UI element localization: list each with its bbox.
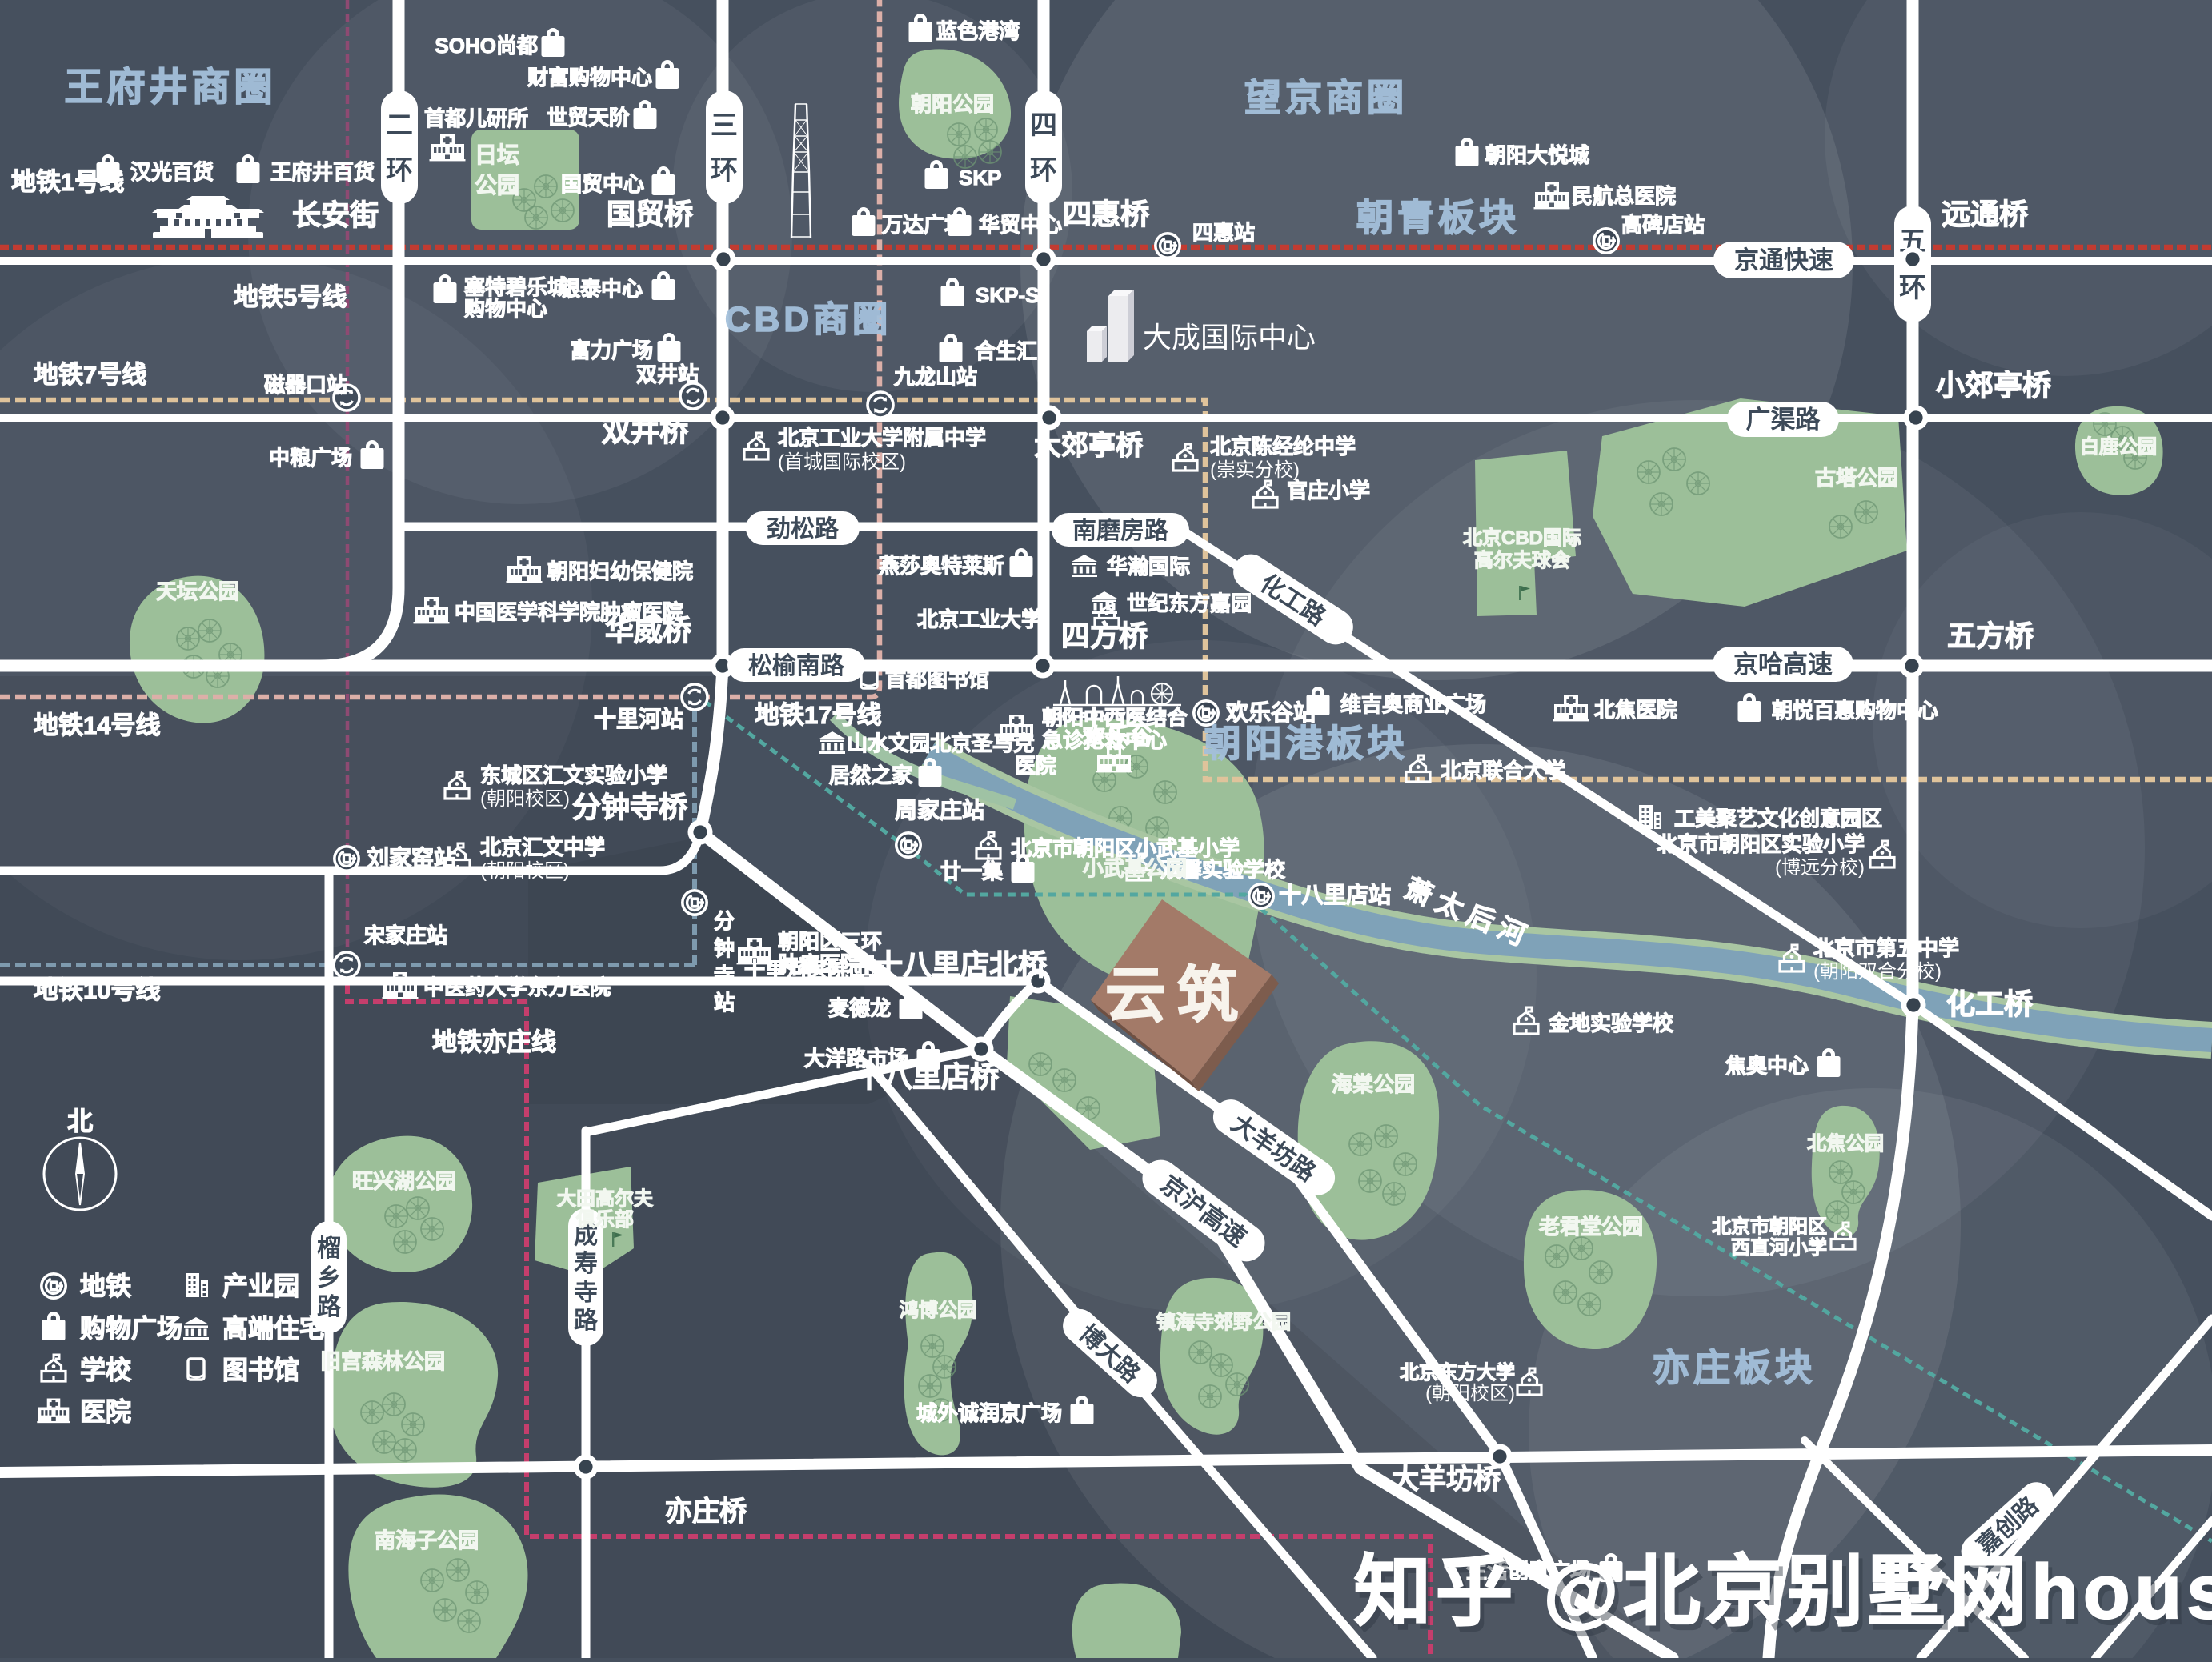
svg-text:图书馆: 图书馆 — [222, 1356, 299, 1384]
svg-text:劲松路: 劲松路 — [767, 516, 840, 543]
svg-text:蓝色港湾: 蓝色港湾 — [936, 19, 1020, 43]
svg-text:三: 三 — [711, 110, 738, 141]
svg-text:九龙山站: 九龙山站 — [893, 365, 977, 389]
svg-text:王府井商圈: 王府井商圈 — [64, 66, 276, 109]
svg-text:朝阳妇幼保健院: 朝阳妇幼保健院 — [547, 559, 693, 583]
svg-text:西直河小学: 西直河小学 — [1731, 1236, 1827, 1259]
svg-text:王府井百货: 王府井百货 — [270, 160, 375, 184]
svg-text:中医药大学东方医院: 中医药大学东方医院 — [423, 975, 611, 999]
svg-text:广渠路: 广渠路 — [1746, 406, 1821, 434]
svg-text:南磨房路: 南磨房路 — [1072, 518, 1169, 544]
svg-text:俱乐部: 俱乐部 — [575, 1208, 634, 1231]
svg-text:北京市第五中学: 北京市第五中学 — [1813, 936, 1959, 960]
svg-text:焦奥中心: 焦奥中心 — [1725, 1054, 1809, 1078]
svg-text:地铁17号线: 地铁17号线 — [755, 701, 881, 729]
svg-text:地铁5号线: 地铁5号线 — [234, 283, 347, 311]
svg-text:北京CBD国际: 北京CBD国际 — [1463, 527, 1581, 549]
svg-text:塞特碧乐城: 塞特碧乐城 — [464, 275, 568, 299]
svg-text:磁器口站: 磁器口站 — [264, 373, 347, 397]
svg-text:地铁14号线: 地铁14号线 — [34, 711, 160, 739]
svg-text:购物中心: 购物中心 — [464, 297, 547, 321]
svg-text:朝青板块: 朝青板块 — [1356, 197, 1520, 238]
svg-text:首都图书馆: 首都图书馆 — [885, 667, 989, 691]
svg-text:国贸中心: 国贸中心 — [561, 172, 644, 196]
svg-text:购物广场: 购物广场 — [80, 1314, 182, 1343]
svg-text:富力广场: 富力广场 — [570, 338, 653, 362]
svg-text:环: 环 — [1030, 155, 1057, 186]
svg-text:北京汇文中学: 北京汇文中学 — [480, 835, 605, 859]
svg-text:世贸天阶: 世贸天阶 — [547, 106, 630, 130]
svg-text:古塔公园: 古塔公园 — [1815, 466, 1898, 490]
svg-text:(首城国际校区): (首城国际校区) — [778, 451, 906, 473]
svg-text:长安街: 长安街 — [292, 198, 379, 231]
svg-text:高端住宅: 高端住宅 — [222, 1314, 325, 1343]
svg-text:分钟寺桥: 分钟寺桥 — [572, 791, 687, 823]
svg-text:南海子公园: 南海子公园 — [375, 1528, 479, 1552]
svg-text:亦庄板块: 亦庄板块 — [1653, 1347, 1816, 1388]
svg-text:寿: 寿 — [574, 1250, 598, 1277]
svg-text:中国医学科学院肿瘤医院: 中国医学科学院肿瘤医院 — [455, 600, 683, 624]
svg-text:地铁亦庄线: 地铁亦庄线 — [432, 1028, 556, 1056]
svg-text:海棠公园: 海棠公园 — [1332, 1072, 1415, 1096]
svg-text:鸿博公园: 鸿博公园 — [900, 1299, 976, 1321]
svg-text:远通桥: 远通桥 — [1942, 198, 2028, 230]
svg-text:地铁10号线: 地铁10号线 — [34, 976, 160, 1004]
svg-text:镇海寺郊野公园: 镇海寺郊野公园 — [1156, 1311, 1291, 1333]
svg-text:中粮广场: 中粮广场 — [269, 446, 352, 470]
svg-text:四方桥: 四方桥 — [1061, 619, 1148, 652]
svg-text:四: 四 — [1030, 110, 1057, 141]
svg-text:学校: 学校 — [80, 1356, 131, 1384]
svg-text:站: 站 — [714, 991, 735, 1015]
svg-text:合生汇: 合生汇 — [975, 339, 1037, 363]
svg-text:松榆南路: 松榆南路 — [748, 653, 845, 679]
svg-text:十里河站: 十里河站 — [594, 707, 683, 731]
svg-text:CBD商圈: CBD商圈 — [725, 300, 892, 339]
svg-text:北焦医院: 北焦医院 — [1594, 698, 1677, 722]
svg-text:急诊抢救中心: 急诊抢救中心 — [1042, 728, 1167, 752]
svg-text:(朝阳校区): (朝阳校区) — [480, 788, 570, 810]
svg-text:SOHO尚都: SOHO尚都 — [435, 34, 538, 58]
svg-text:北京圣马克: 北京圣马克 — [930, 731, 1034, 755]
svg-text:华贸中心: 华贸中心 — [979, 213, 1062, 237]
svg-text:廿一集: 廿一集 — [940, 859, 1004, 883]
svg-text:刘家窑站: 刘家窑站 — [367, 845, 456, 871]
svg-text:北京工业大学: 北京工业大学 — [917, 607, 1042, 631]
svg-text:北京市朝阳区实验小学: 北京市朝阳区实验小学 — [1657, 832, 1865, 856]
svg-text:老君堂公园: 老君堂公园 — [1539, 1215, 1643, 1239]
svg-text:大成国际中心: 大成国际中心 — [1143, 321, 1316, 354]
svg-text:小郊亭桥: 小郊亭桥 — [1936, 369, 2051, 402]
svg-text:金地实验学校: 金地实验学校 — [1548, 1011, 1674, 1035]
svg-text:二: 二 — [386, 110, 413, 141]
svg-text:大洋路市场: 大洋路市场 — [804, 1047, 908, 1071]
svg-text:(博远分校): (博远分校) — [1775, 857, 1865, 879]
svg-text:(崇实分校): (崇实分校) — [1210, 459, 1300, 481]
svg-text:知乎 @北京别墅网housel...: 知乎 @北京别墅网housel... — [1354, 1549, 2212, 1635]
svg-text:北京东方大学: 北京东方大学 — [1400, 1361, 1515, 1384]
svg-text:朝悦百惠购物中心: 朝悦百惠购物中心 — [1772, 699, 1938, 723]
svg-text:医院: 医院 — [1015, 754, 1056, 778]
svg-text:高碑店站: 高碑店站 — [1621, 213, 1705, 237]
svg-text:燕莎奥特莱斯: 燕莎奥特莱斯 — [879, 554, 1004, 578]
svg-text:云筑: 云筑 — [1105, 962, 1249, 1030]
svg-text:维吉奥商业广场: 维吉奥商业广场 — [1340, 692, 1486, 716]
svg-text:银泰中心: 银泰中心 — [559, 277, 643, 301]
svg-text:世纪东方嘉园: 世纪东方嘉园 — [1127, 591, 1252, 615]
svg-text:朝阳大悦城: 朝阳大悦城 — [1485, 143, 1589, 167]
svg-text:麦德龙: 麦德龙 — [828, 996, 891, 1020]
svg-text:北京陈经纶中学: 北京陈经纶中学 — [1210, 435, 1356, 459]
svg-text:宋家庄站: 宋家庄站 — [364, 923, 447, 947]
svg-text:(朝阳校区): (朝阳校区) — [1425, 1383, 1515, 1404]
svg-text:十八里店站: 十八里店站 — [1279, 883, 1391, 907]
svg-text:山水文园: 山水文园 — [847, 731, 930, 755]
svg-text:产业园: 产业园 — [222, 1272, 299, 1300]
svg-text:工美聚艺文化创意园区: 工美聚艺文化创意园区 — [1674, 807, 1882, 831]
svg-text:官庄小学: 官庄小学 — [1287, 479, 1370, 503]
svg-text:华瀚国际: 华瀚国际 — [1107, 555, 1190, 579]
svg-text:北京联合大学: 北京联合大学 — [1441, 759, 1565, 783]
svg-text:京通快速: 京通快速 — [1734, 246, 1833, 274]
svg-text:城外诚润京广场: 城外诚润京广场 — [916, 1401, 1062, 1425]
svg-text:双井站: 双井站 — [636, 362, 699, 386]
svg-text:路: 路 — [574, 1308, 599, 1334]
svg-text:北京市朝阳区: 北京市朝阳区 — [1712, 1215, 1827, 1238]
svg-text:北焦公园: 北焦公园 — [1807, 1132, 1884, 1155]
svg-text:旧宫森林公园: 旧宫森林公园 — [320, 1349, 445, 1373]
svg-text:环: 环 — [711, 155, 738, 186]
svg-text:北京工业大学附属中学: 北京工业大学附属中学 — [778, 426, 986, 450]
svg-text:公园: 公园 — [475, 173, 519, 198]
svg-text:望京商圈: 望京商圈 — [1244, 77, 1408, 118]
svg-text:小武基公园: 小武基公园 — [1083, 856, 1187, 880]
svg-text:朝阳港板块: 朝阳港板块 — [1204, 723, 1409, 764]
svg-text:寺: 寺 — [574, 1280, 598, 1306]
svg-text:钟: 钟 — [714, 936, 735, 960]
svg-text:(朝阳校区): (朝阳校区) — [480, 860, 570, 882]
svg-text:十里河医院: 十里河医院 — [744, 959, 848, 983]
svg-text:大羊坊桥: 大羊坊桥 — [1392, 1464, 1501, 1495]
svg-text:旺兴湖公园: 旺兴湖公园 — [352, 1169, 456, 1193]
svg-text:乡: 乡 — [317, 1265, 341, 1292]
svg-text:京哈高速: 京哈高速 — [1733, 651, 1833, 679]
svg-text:分: 分 — [714, 909, 735, 933]
svg-text:十八里店北桥: 十八里店北桥 — [874, 948, 1047, 981]
svg-text:朝阳公园: 朝阳公园 — [911, 92, 994, 116]
svg-text:首都儿研所: 首都儿研所 — [424, 106, 528, 130]
svg-text:白鹿公园: 白鹿公园 — [2080, 435, 2157, 458]
svg-text:东城区汇文实验小学: 东城区汇文实验小学 — [480, 763, 667, 787]
svg-text:民航总医院: 民航总医院 — [1572, 184, 1676, 208]
svg-text:环: 环 — [1899, 273, 1926, 303]
svg-text:(朝阳双合分校): (朝阳双合分校) — [1813, 961, 1942, 983]
svg-text:地铁: 地铁 — [80, 1272, 131, 1300]
svg-text:四惠桥: 四惠桥 — [1063, 198, 1149, 230]
svg-text:大郊亭桥: 大郊亭桥 — [1034, 431, 1143, 461]
svg-text:北: 北 — [67, 1107, 93, 1135]
svg-text:朝阳区三环: 朝阳区三环 — [778, 930, 882, 954]
svg-text:日坛: 日坛 — [475, 142, 519, 167]
svg-text:大田高尔夫: 大田高尔夫 — [557, 1187, 654, 1210]
svg-text:国贸桥: 国贸桥 — [607, 198, 693, 230]
svg-text:双井桥: 双井桥 — [602, 414, 688, 447]
svg-text:天坛公园: 天坛公园 — [156, 579, 239, 603]
svg-text:居然之家: 居然之家 — [829, 763, 912, 787]
svg-text:五方桥: 五方桥 — [1947, 619, 2034, 652]
svg-text:朝阳中西医结合: 朝阳中西医结合 — [1042, 706, 1188, 730]
svg-text:寺: 寺 — [714, 963, 735, 987]
svg-text:四惠站: 四惠站 — [1192, 221, 1255, 245]
svg-text:亦庄桥: 亦庄桥 — [665, 1496, 747, 1527]
svg-text:高尔夫球会: 高尔夫球会 — [1474, 549, 1570, 571]
svg-text:SKP: SKP — [959, 166, 1001, 190]
svg-text:SKP-S: SKP-S — [976, 283, 1039, 307]
svg-text:环: 环 — [386, 155, 413, 186]
svg-text:财富购物中心: 财富购物中心 — [527, 66, 652, 90]
svg-text:欢乐谷站: 欢乐谷站 — [1225, 700, 1316, 725]
svg-text:地铁7号线: 地铁7号线 — [34, 361, 146, 389]
svg-text:化工桥: 化工桥 — [1946, 987, 2033, 1020]
svg-text:周家庄站: 周家庄站 — [895, 797, 984, 823]
svg-text:医院: 医院 — [80, 1397, 131, 1426]
svg-text:榴: 榴 — [317, 1235, 341, 1262]
svg-text:汉光百货: 汉光百货 — [130, 160, 214, 184]
